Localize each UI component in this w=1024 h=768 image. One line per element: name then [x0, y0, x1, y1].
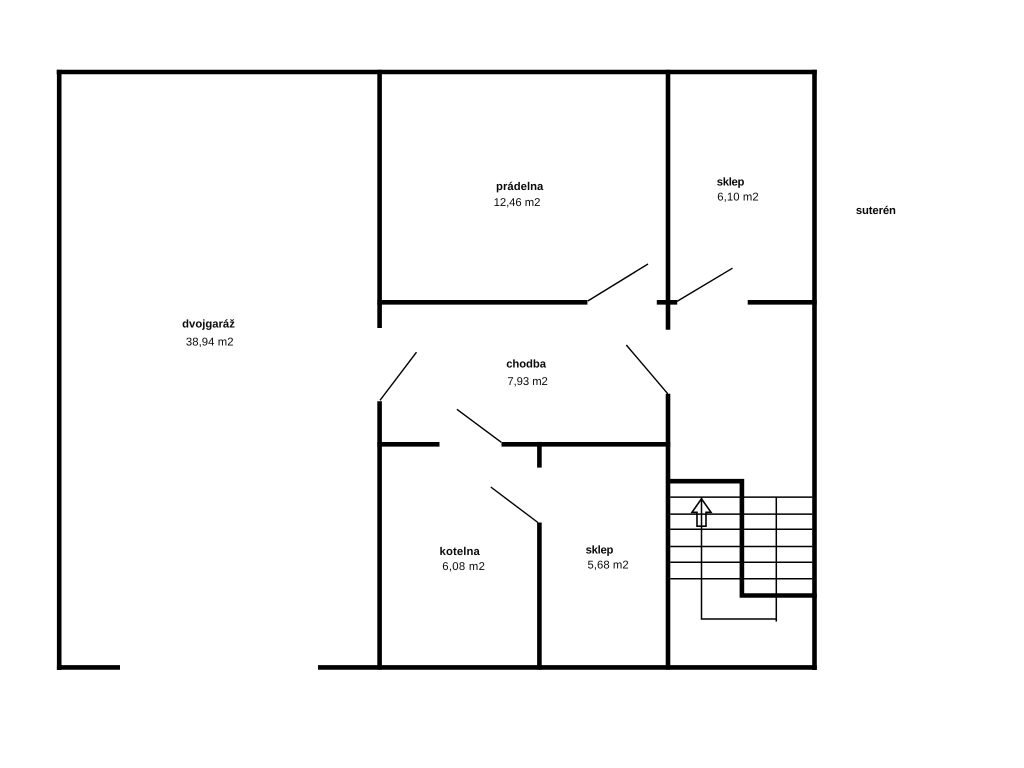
- svg-text:prádelna: prádelna: [496, 181, 544, 193]
- svg-text:6,08 m2: 6,08 m2: [442, 561, 485, 573]
- svg-text:38,94 m2: 38,94 m2: [186, 336, 234, 348]
- svg-text:12,46 m2: 12,46 m2: [494, 197, 541, 209]
- svg-text:sklep: sklep: [586, 545, 614, 557]
- svg-text:suterén: suterén: [856, 205, 896, 217]
- svg-text:5,68 m2: 5,68 m2: [588, 559, 629, 571]
- svg-text:dvojgaráž: dvojgaráž: [182, 319, 235, 331]
- svg-text:kotelna: kotelna: [440, 546, 481, 558]
- svg-text:6,10 m2: 6,10 m2: [717, 192, 758, 204]
- svg-text:sklep: sklep: [717, 176, 745, 188]
- svg-text:7,93 m2: 7,93 m2: [507, 376, 548, 388]
- svg-text:chodba: chodba: [506, 359, 547, 371]
